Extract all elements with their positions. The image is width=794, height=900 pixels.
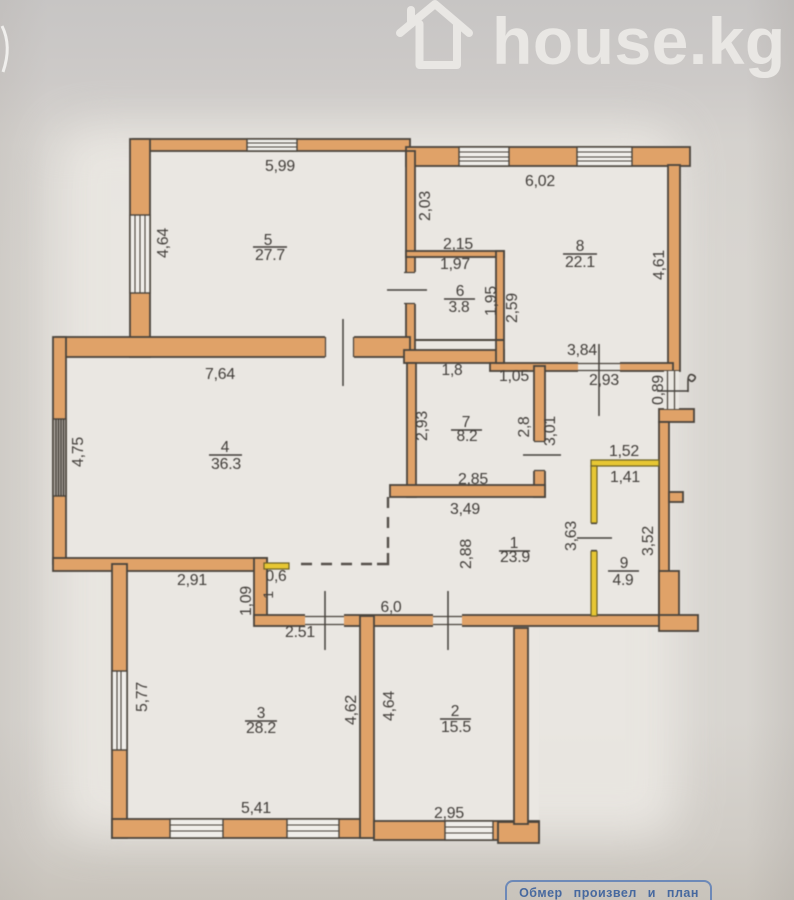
svg-text:4,75: 4,75 [70,437,87,467]
svg-text:4,64: 4,64 [155,227,172,258]
svg-text:2: 2 [451,703,459,720]
svg-text:5,99: 5,99 [265,158,295,175]
svg-text:9: 9 [620,555,628,572]
svg-text:0,89: 0,89 [650,375,667,405]
svg-text:15.5: 15.5 [441,719,471,736]
svg-text:0,6: 0,6 [266,568,287,585]
svg-text:2,91: 2,91 [177,572,207,589]
svg-text:1,09: 1,09 [238,586,255,616]
svg-text:28.2: 28.2 [246,720,276,737]
svg-text:1,97: 1,97 [440,256,470,273]
svg-text:6,0: 6,0 [381,599,403,616]
svg-text:4.9: 4.9 [613,572,634,589]
svg-text:2,8: 2,8 [516,417,533,438]
svg-text:2,03: 2,03 [417,191,434,221]
svg-text:2,93: 2,93 [414,411,431,441]
svg-text:1,95: 1,95 [483,286,500,316]
svg-text:3,84: 3,84 [567,342,598,359]
svg-text:1,52: 1,52 [609,443,639,460]
svg-text:4: 4 [221,439,230,456]
svg-text:1,41: 1,41 [610,469,640,486]
svg-text:3.8: 3.8 [449,299,470,316]
svg-text:3,49: 3,49 [450,501,480,518]
svg-text:6,02: 6,02 [525,173,555,190]
svg-text:6: 6 [456,283,464,300]
svg-text:4,64: 4,64 [381,690,398,721]
svg-text:36.3: 36.3 [211,456,241,473]
svg-text:8: 8 [576,238,584,255]
svg-text:5,77: 5,77 [134,682,151,712]
svg-text:2,93: 2,93 [589,372,619,389]
svg-text:1: 1 [260,591,276,599]
svg-text:3,01: 3,01 [542,416,559,446]
svg-text:7,64: 7,64 [205,366,236,383]
svg-text:4,61: 4,61 [651,250,668,280]
svg-text:1,8: 1,8 [442,362,463,379]
svg-text:27.7: 27.7 [255,247,285,264]
svg-text:2,85: 2,85 [458,471,488,488]
svg-text:2,95: 2,95 [434,805,464,822]
svg-text:2,59: 2,59 [504,293,521,323]
svg-text:3,52: 3,52 [640,526,657,556]
svg-text:22.1: 22.1 [565,254,595,271]
svg-text:4,62: 4,62 [343,695,360,725]
svg-text:1,05: 1,05 [499,368,529,385]
svg-text:2,88: 2,88 [458,539,475,569]
svg-text:5,41: 5,41 [241,800,271,817]
svg-text:2,15: 2,15 [443,236,473,253]
svg-text:2.51: 2.51 [285,624,315,641]
svg-text:3,63: 3,63 [563,521,580,551]
